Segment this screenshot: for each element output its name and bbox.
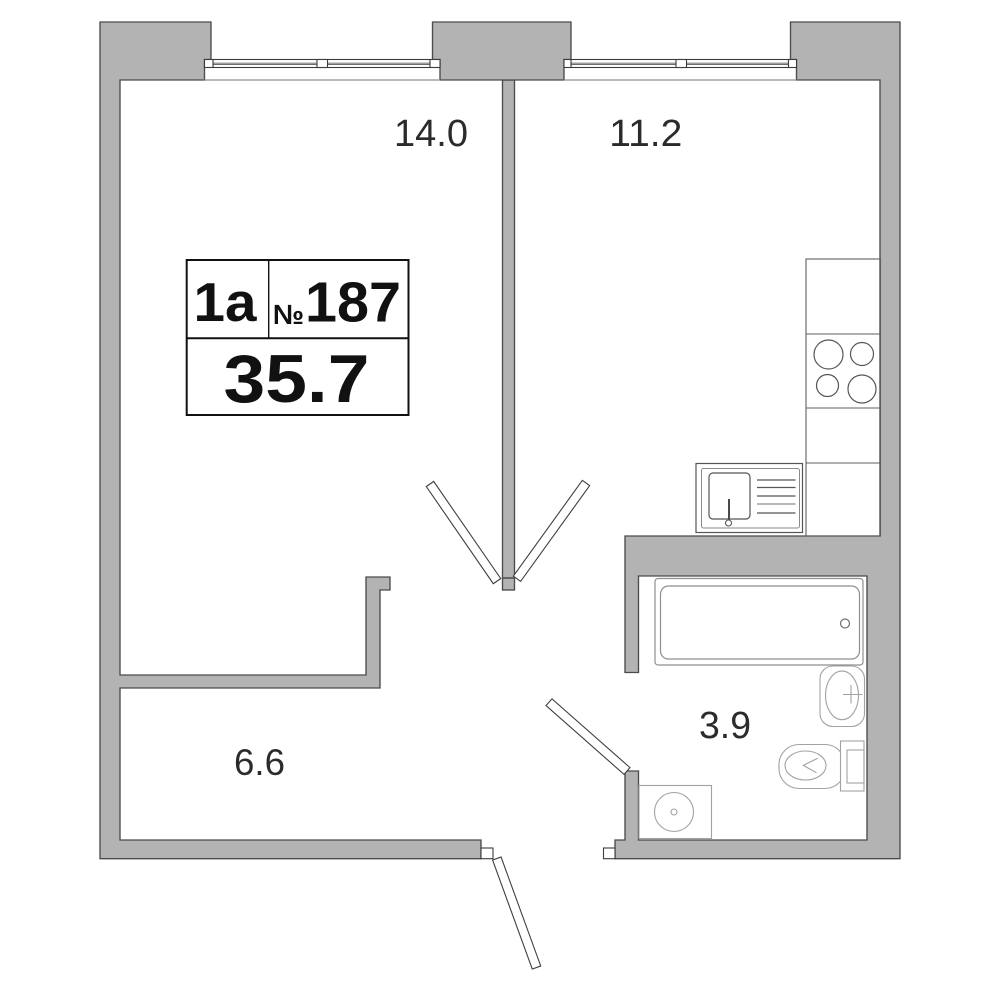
svg-text:6.6: 6.6 — [234, 741, 285, 783]
svg-text:35.7: 35.7 — [224, 341, 370, 417]
svg-text:14.0: 14.0 — [394, 112, 468, 155]
svg-text:1а: 1а — [194, 271, 257, 333]
svg-text:№: № — [273, 299, 304, 330]
svg-text:187: 187 — [305, 271, 401, 335]
svg-text:11.2: 11.2 — [609, 112, 682, 155]
svg-text:3.9: 3.9 — [699, 705, 751, 747]
